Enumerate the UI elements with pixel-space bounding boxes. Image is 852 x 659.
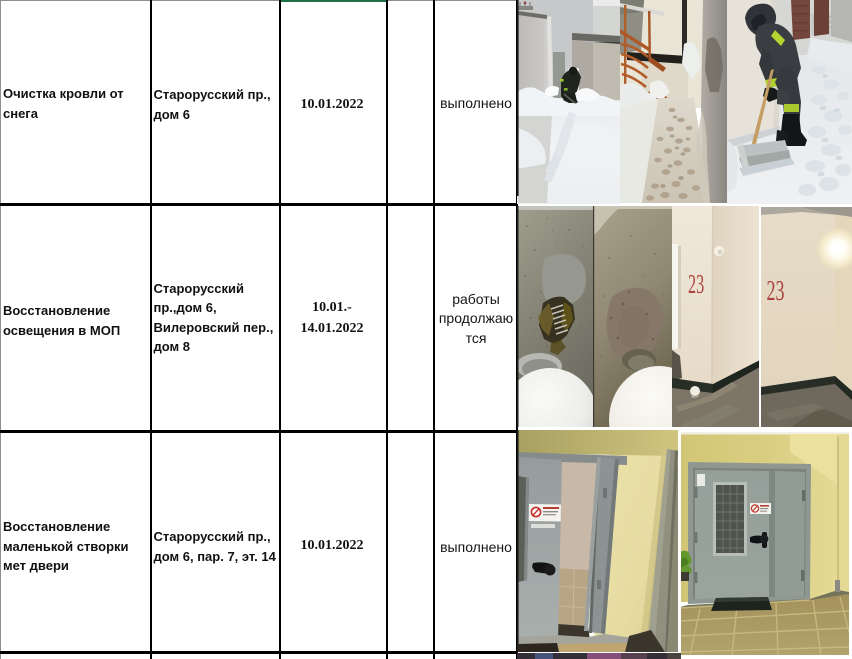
svg-text:23: 23 bbox=[688, 269, 704, 299]
svg-text:23: 23 bbox=[767, 276, 785, 307]
